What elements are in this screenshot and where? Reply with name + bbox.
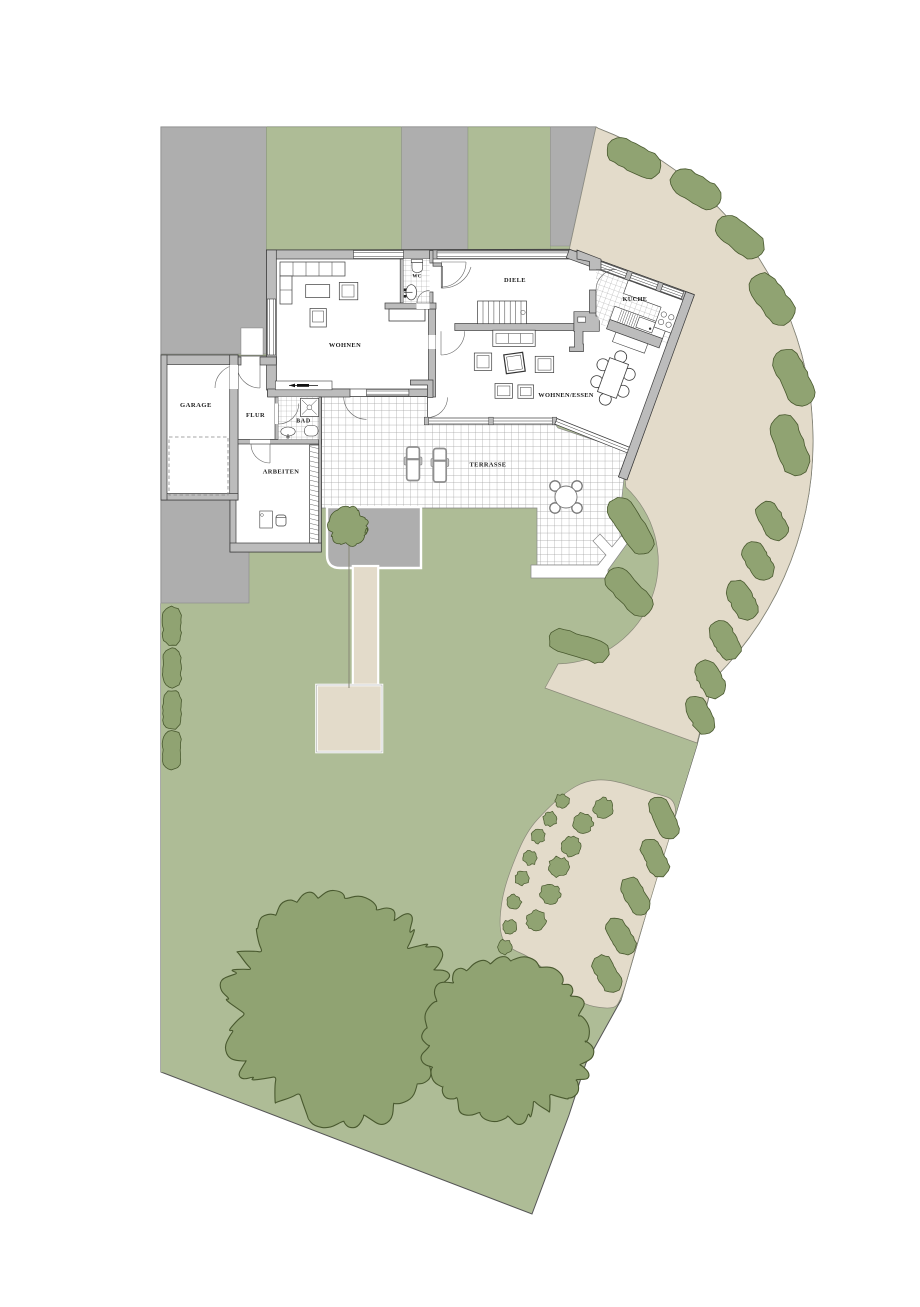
svg-text:BAD: BAD: [296, 419, 311, 425]
svg-text:WOHNEN/ESSEN: WOHNEN/ESSEN: [538, 392, 594, 399]
svg-text:TERRASSE: TERRASSE: [470, 462, 507, 469]
svg-text:WOHNEN: WOHNEN: [329, 342, 361, 349]
svg-text:WC: WC: [412, 274, 421, 280]
svg-text:DIELE: DIELE: [504, 277, 526, 284]
svg-text:FLUR: FLUR: [246, 412, 265, 419]
svg-text:ARBEITEN: ARBEITEN: [263, 469, 300, 476]
svg-text:KÜCHE: KÜCHE: [623, 296, 648, 303]
svg-text:GARAGE: GARAGE: [180, 402, 212, 409]
